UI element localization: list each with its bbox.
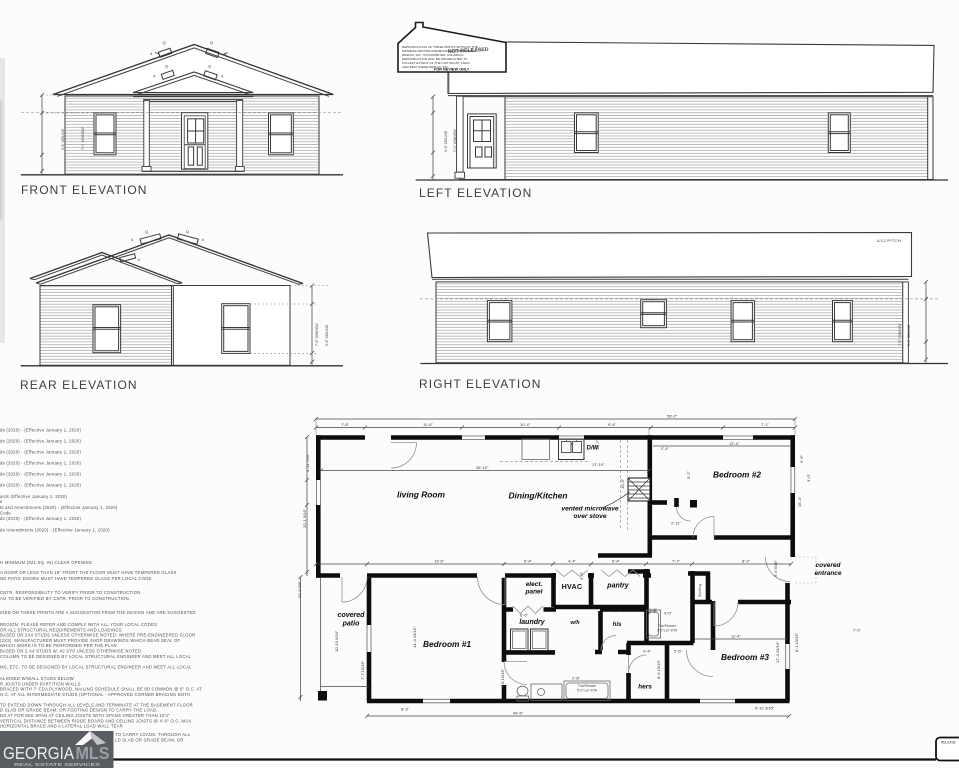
svg-text:TO CARRY LOADS. THROUGH ALL: TO CARRY LOADS. THROUGH ALL (115, 732, 191, 737)
svg-text:8'-1 15/16": 8'-1 15/16" (794, 632, 799, 652)
svg-text:Dining/Kitchen: Dining/Kitchen (508, 491, 567, 501)
svg-text:w/h: w/h (570, 620, 580, 626)
svg-text:5'-4": 5'-4" (524, 558, 533, 563)
svg-text:de Amendments (2020) - (Effect: de Amendments (2020) - (Effective Januar… (0, 528, 110, 533)
svg-text:covered: covered (338, 612, 366, 619)
svg-text:2'-4": 2'-4" (614, 608, 623, 613)
svg-text:11'-6": 11'-6" (423, 422, 433, 427)
svg-text:O.C. AT ALL INTERMEDIATE STUDS: O.C. AT ALL INTERMEDIATE STUDS (OPTIONAL… (0, 692, 191, 697)
svg-text:Bedroom #1: Bedroom #1 (423, 639, 471, 649)
svg-text:FOR REVIEW ONLY: FOR REVIEW ONLY (434, 68, 470, 72)
svg-text:Q: Q (208, 64, 211, 69)
svg-text:VERTICAL DISTANCE BETWEEN RIDG: VERTICAL DISTANCE BETWEEN RIDGE BOARD AN… (0, 718, 193, 723)
svg-text:his: his (613, 622, 622, 628)
svg-text:2'-11": 2'-11" (671, 521, 681, 526)
svg-text:H MINIMUM (821 SQ. IN) CLEAR O: H MINIMUM (821 SQ. IN) CLEAR OPENING (0, 560, 92, 565)
svg-text:LEFT ELEVATION: LEFT ELEVATION (419, 186, 532, 200)
svg-text:DS AT FOR MID SPAN AT CEILING: DS AT FOR MID SPAN AT CEILING JOISTS WIT… (0, 713, 170, 718)
svg-text:over stove: over stove (574, 513, 607, 520)
svg-text:7'-7 15/16": 7'-7 15/16" (360, 660, 365, 680)
svg-text:Shelving: Shelving (698, 584, 702, 597)
svg-text:7'-6" WINDOW: 7'-6" WINDOW (315, 323, 319, 346)
svg-text:ALIGNED W/WALL STUDS BELOW: ALIGNED W/WALL STUDS BELOW (0, 676, 74, 681)
svg-text:Tub/Shower: Tub/Shower (578, 684, 597, 688)
svg-text:36'-10": 36'-10" (476, 465, 489, 470)
svg-text:REAR ELEVATION: REAR ELEVATION (20, 378, 138, 392)
svg-text:REAL ESTATE SERVICES: REAL ESTATE SERVICES (14, 762, 100, 767)
svg-text:7'-0" WINDOW: 7'-0" WINDOW (81, 127, 85, 150)
svg-text:Code: Code (0, 510, 11, 515)
svg-text:A DOOR OR LESS THAN 18" FRONT: A DOOR OR LESS THAN 18" FRONT THE FLOOR … (0, 570, 177, 575)
svg-text:9'-6" CEILING: 9'-6" CEILING (907, 324, 911, 346)
svg-text:9'-6": 9'-6" (799, 454, 804, 463)
svg-text:6'-6": 6'-6" (520, 613, 529, 618)
svg-text:panel: panel (525, 589, 543, 596)
svg-text:34'-9 5/8": 34'-9 5/8" (297, 581, 302, 598)
svg-text:10'-7": 10'-7" (595, 439, 600, 450)
svg-text:3'-0": 3'-0" (579, 571, 584, 580)
svg-text:living Room: living Room (397, 490, 445, 500)
svg-text:10'-3": 10'-3" (620, 478, 625, 489)
svg-text:vented microwave: vented microwave (561, 506, 619, 513)
svg-text:REGION: PLEASE REFER AND COMPL: REGION: PLEASE REFER AND COMPLY WITH ALL… (0, 622, 157, 627)
svg-text:5'-8 15/16": 5'-8 15/16" (500, 668, 505, 688)
svg-text:covered: covered (816, 562, 842, 569)
svg-text:17'-10": 17'-10" (592, 462, 605, 467)
svg-text:Q: Q (165, 64, 168, 69)
svg-text:2'-6": 2'-6" (674, 649, 683, 654)
svg-text:HVAC: HVAC (562, 582, 583, 591)
svg-text:9'-6" CEILING: 9'-6" CEILING (325, 324, 329, 346)
svg-text:5'-4": 5'-4" (612, 558, 621, 563)
svg-text:20'-1 5/16": 20'-1 5/16" (302, 508, 307, 528)
svg-text:Q: Q (145, 229, 148, 234)
svg-text:entrance: entrance (814, 570, 841, 577)
svg-text:Bedroom #2: Bedroom #2 (713, 470, 761, 480)
svg-text:ds (2020) - (Effective January: ds (2020) - (Effective January 1, 2020) (0, 461, 81, 466)
svg-text:R JOISTS UNDER PARTITION WALLS: R JOISTS UNDER PARTITION WALLS (0, 681, 81, 686)
svg-text:9'-11 7/16": 9'-11 7/16" (305, 453, 310, 472)
svg-text:GEORGIA: GEORGIA (3, 743, 74, 763)
svg-text:WHICH WORK IS TO BE PERFORMED: WHICH WORK IS TO BE PERFORMED PER THE PL… (0, 643, 117, 648)
svg-text:7'-6" WINDOW: 7'-6" WINDOW (898, 323, 902, 346)
svg-text:4'-6": 4'-6" (649, 609, 658, 614)
svg-text:BASED ON 2X4 STUDS UNLESS OTHE: BASED ON 2X4 STUDS UNLESS OTHERWISE NOTE… (0, 633, 195, 638)
svg-text:ds (2020) - (Effective January: ds (2020) - (Effective January 1, 2020) (0, 428, 81, 433)
svg-text:ts and Amendments (2020) - (Ef: ts and Amendments (2020) - (Effective Ja… (0, 505, 118, 510)
svg-text:7'-8": 7'-8" (341, 422, 350, 427)
svg-text:Bedroom #3: Bedroom #3 (721, 652, 769, 662)
svg-text:AG TO BE VERIFIED BY CNTR. PRI: AG TO BE VERIFIED BY CNTR. PRIOR TO CONS… (0, 596, 130, 601)
svg-text:ds (2020) - (Effective January: ds (2020) - (Effective January 1, 2020) (0, 472, 81, 477)
svg-text:MLS: MLS (76, 743, 110, 763)
svg-text:5'-10 3/16": 5'-10 3/16" (755, 706, 775, 711)
svg-text:17'-4 15/16": 17'-4 15/16" (775, 641, 780, 663)
svg-text:HORIZONTAL BRACE AND A LATERAL: HORIZONTAL BRACE AND A LATERAL LOAD WALL… (0, 724, 123, 729)
svg-text:ds (2020) - (Effective January: ds (2020) - (Effective January 1, 2020) (0, 483, 81, 488)
svg-text:D SLAB OR GRADE BEAM, OR FOOTI: D SLAB OR GRADE BEAM, OR FOOTING DESIGN … (0, 708, 158, 713)
svg-text:8'-6 15/16": 8'-6 15/16" (656, 659, 661, 679)
svg-text:RIGHT ELEVATION: RIGHT ELEVATION (419, 377, 542, 391)
svg-text:laundry: laundry (519, 619, 545, 626)
svg-text:Tub/Shower: Tub/Shower (658, 624, 677, 628)
svg-text:9'-6 5/16": 9'-6 5/16" (773, 560, 778, 577)
svg-text:ds (2020) - (Effective January: ds (2020) - (Effective January 1, 2020) (0, 450, 81, 455)
svg-text:BRACED WITH 7' CDA PLYWOOD. NA: BRACED WITH 7' CDA PLYWOOD. NAILING SCHE… (0, 687, 202, 692)
svg-text:5'-0"Lx2'-6"W: 5'-0"Lx2'-6"W (577, 689, 598, 693)
svg-text:4'-4": 4'-4" (568, 558, 577, 563)
svg-text:12'-4": 12'-4" (729, 441, 740, 446)
svg-text:FRONT ELEVATION: FRONT ELEVATION (21, 183, 148, 197)
svg-text:13'-6": 13'-6" (434, 558, 445, 563)
svg-text:8'-2": 8'-2" (742, 558, 751, 563)
svg-text:hers: hers (638, 684, 652, 691)
svg-text:7'-0" WINDOW: 7'-0" WINDOW (453, 129, 457, 152)
svg-text:IDED ON THESE PRINTS ARE A SUG: IDED ON THESE PRINTS ARE A SUGGESTION FR… (0, 610, 196, 615)
svg-text:ards (Effective January 1, 202: ards (Effective January 1, 2020) (0, 494, 68, 499)
svg-text:ds (2020) - (Effective January: ds (2020) - (Effective January 1, 2020) (0, 439, 81, 444)
svg-text:CNTR. RESPONSIBILITY TO VERIFY: CNTR. RESPONSIBILITY TO VERIFY PRIOR TO … (0, 590, 141, 595)
svg-text:7'-1": 7'-1" (761, 422, 770, 427)
svg-text:ds (2020) - (Effective January: ds (2020) - (Effective January 1, 2020) (0, 516, 81, 521)
svg-text:RELEASE: RELEASE (941, 741, 956, 745)
svg-text:3'-0": 3'-0" (664, 611, 673, 616)
svg-text:9'-2": 9'-2" (686, 470, 691, 479)
svg-text:14'-4 15/16": 14'-4 15/16" (412, 626, 417, 648)
svg-text:elect.: elect. (526, 581, 543, 588)
svg-text:OR ALL STRUCTURAL REQUIREMENTS: OR ALL STRUCTURAL REQUIREMENTS AND LOADI… (0, 627, 122, 632)
svg-text:9'-6": 9'-6" (608, 422, 617, 427)
svg-text:Q: Q (186, 229, 189, 234)
svg-text:10'-4": 10'-4" (520, 422, 531, 427)
svg-text:COLUMN TO BE DESIGNED BY LOCAL: COLUMN TO BE DESIGNED BY LOCAL STRUCTURA… (0, 654, 192, 659)
svg-text:BASED ON 2 X4 STUDS W. #2 SYP: BASED ON 2 X4 STUDS W. #2 SYP UNLESS OTH… (0, 649, 141, 654)
svg-text:pantry: pantry (606, 583, 630, 590)
svg-text:7'-7": 7'-7" (672, 558, 681, 563)
svg-text:Q: Q (163, 40, 166, 45)
svg-text:9'-6" CEILING: 9'-6" CEILING (444, 130, 448, 152)
svg-text:8'-3": 8'-3" (401, 707, 410, 712)
svg-text:56'-2": 56'-2" (667, 414, 678, 419)
svg-text:15'-4": 15'-4" (797, 496, 802, 507)
svg-text:LD SLAB OR GRADE BEAM, OR: LD SLAB OR GRADE BEAM, OR (115, 738, 184, 743)
svg-text:MS, ETC. TO BE DESIGNED BY LOC: MS, ETC. TO BE DESIGNED BY LOCAL STRUCTU… (0, 665, 192, 670)
svg-text:2'-8": 2'-8" (572, 676, 581, 681)
svg-text:3'-0"Lx2'-6"W: 3'-0"Lx2'-6"W (657, 629, 678, 633)
svg-text:11'-4": 11'-4" (731, 634, 741, 639)
svg-text:patio: patio (342, 621, 360, 628)
svg-text:ND PATIO DOORS MUST HAVE TEMPE: ND PATIO DOORS MUST HAVE TEMPERED GLASS … (0, 576, 152, 581)
svg-text:TO EXTEND DOWN THROUGH ALL LEV: TO EXTEND DOWN THROUGH ALL LEVELS AND TE… (0, 702, 193, 707)
svg-text:10'-10 5/16": 10'-10 5/16" (334, 630, 339, 652)
svg-text:49'-6": 49'-6" (513, 711, 524, 716)
svg-text:4'-4": 4'-4" (643, 649, 652, 654)
svg-text:7'-2": 7'-2" (853, 628, 862, 633)
svg-text:2'-4": 2'-4" (661, 446, 670, 451)
svg-text:9'-6" CEILING: 9'-6" CEILING (61, 128, 65, 150)
svg-text:Q: Q (210, 40, 213, 45)
svg-text:e: e (0, 499, 3, 504)
svg-text:(2X3). MANUFACTURER MUST PROVI: (2X3). MANUFACTURER MUST PROVIDE SHOP DR… (0, 638, 180, 643)
svg-text:3'-0": 3'-0" (806, 473, 811, 482)
svg-text:4/12 PITCH: 4/12 PITCH (877, 238, 901, 243)
